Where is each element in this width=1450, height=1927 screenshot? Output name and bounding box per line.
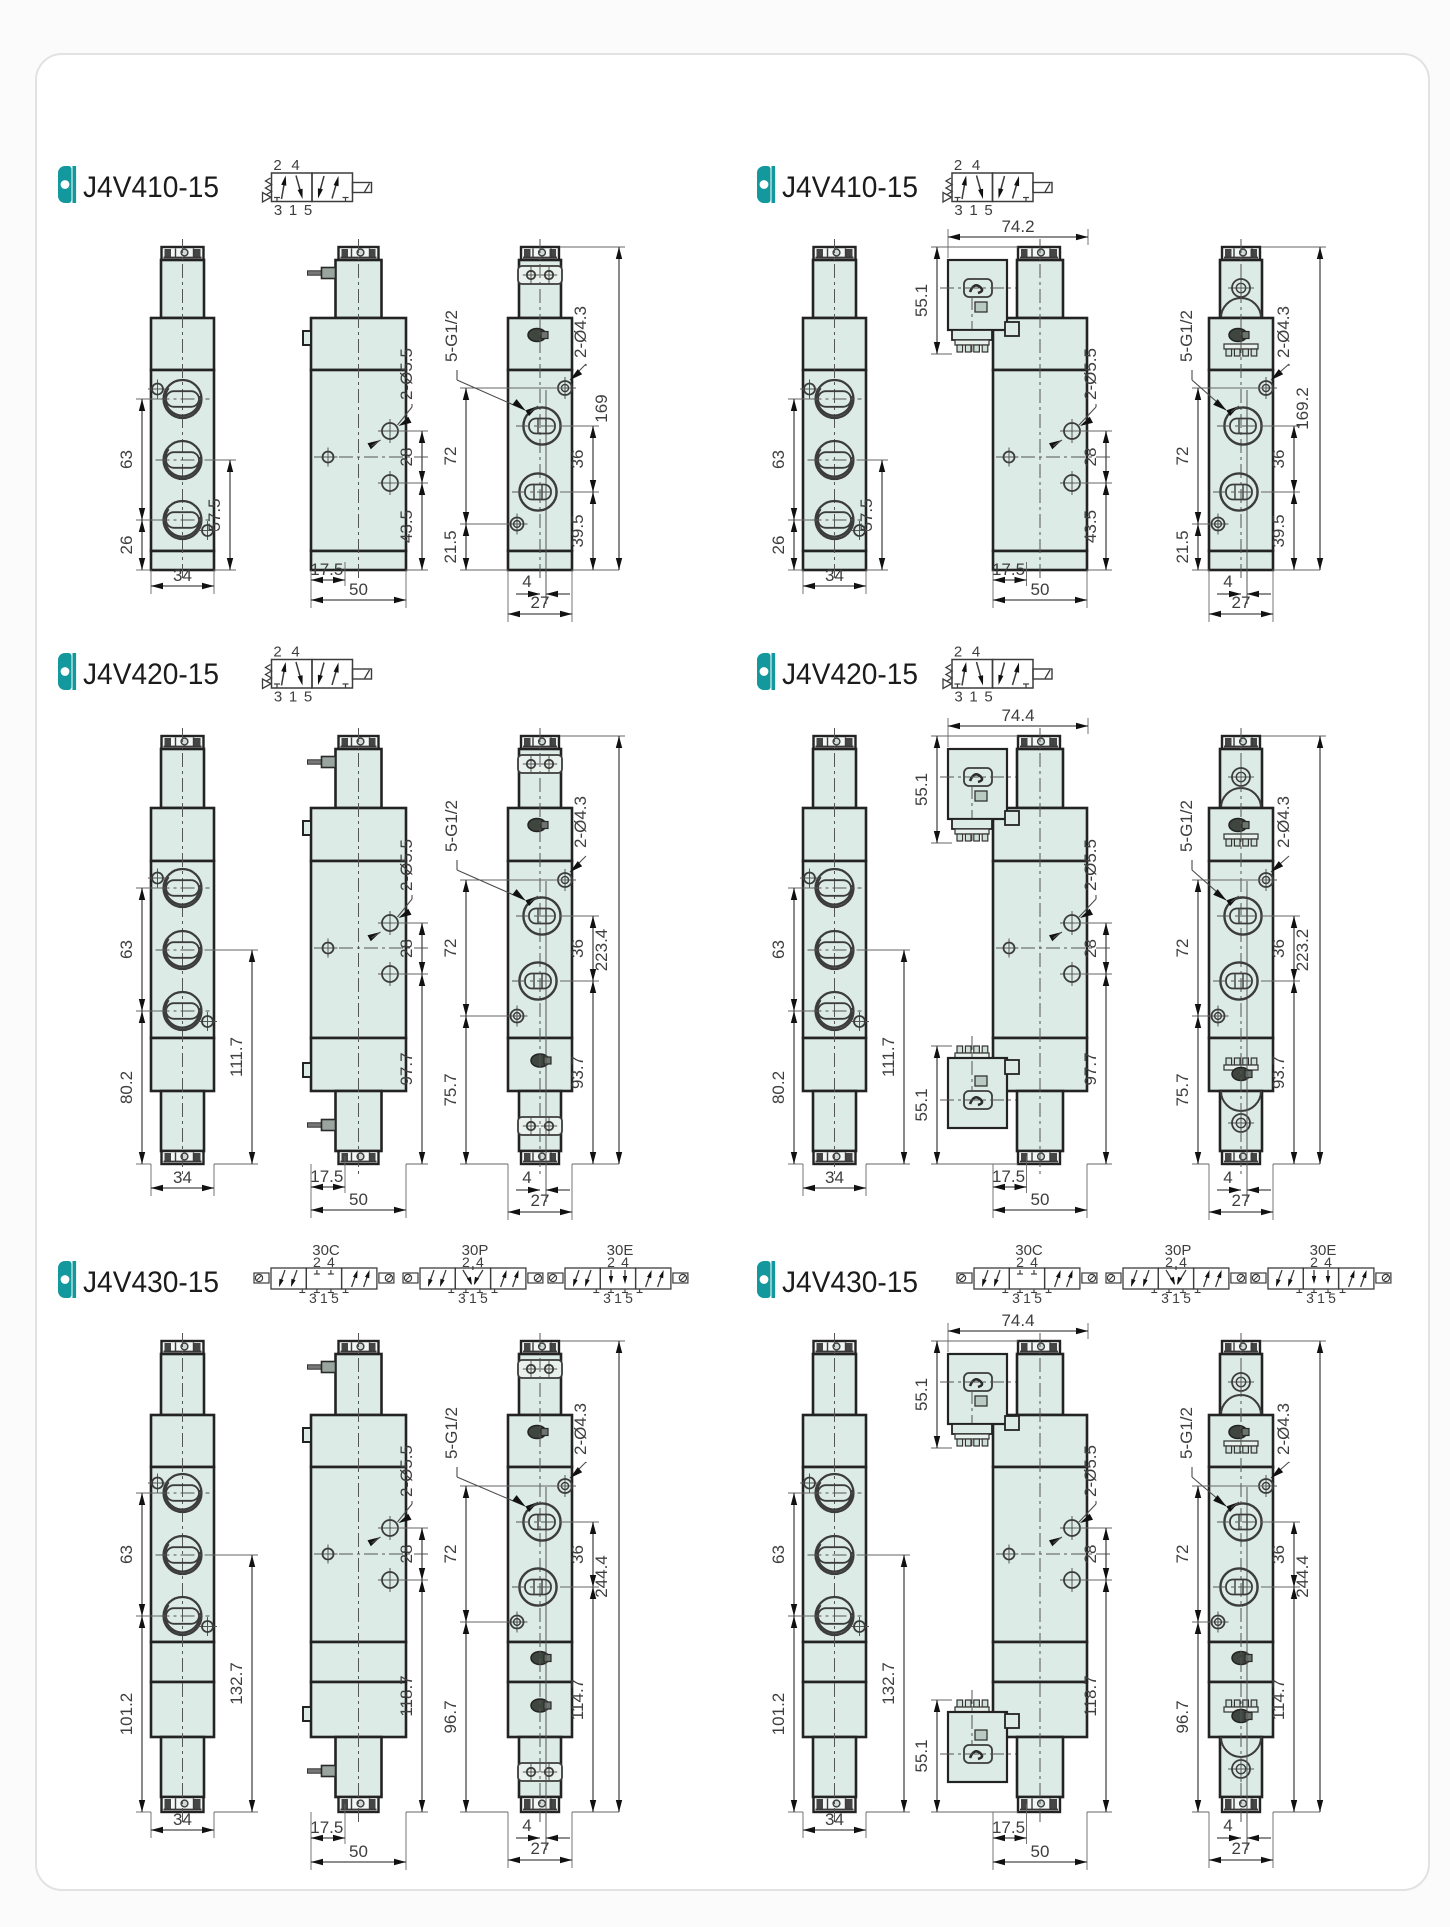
- svg-text:4: 4: [327, 1254, 335, 1270]
- svg-text:2: 2: [273, 644, 281, 661]
- svg-text:28: 28: [397, 939, 416, 958]
- svg-text:5: 5: [625, 1290, 633, 1306]
- svg-text:4: 4: [1030, 1254, 1038, 1270]
- svg-text:27: 27: [1232, 1839, 1251, 1858]
- svg-text:36: 36: [568, 939, 587, 958]
- svg-text:3: 3: [954, 202, 962, 219]
- svg-text:50: 50: [1031, 580, 1050, 599]
- svg-text:2: 2: [1165, 1254, 1173, 1270]
- svg-text:2: 2: [273, 157, 281, 174]
- svg-text:4: 4: [476, 1254, 484, 1270]
- svg-text:34: 34: [173, 1810, 192, 1829]
- svg-text:97.7: 97.7: [1081, 1052, 1100, 1085]
- svg-text:1: 1: [1317, 1290, 1325, 1306]
- svg-text:34: 34: [825, 1810, 844, 1829]
- svg-text:3: 3: [309, 1290, 317, 1306]
- svg-text:26: 26: [769, 536, 788, 555]
- svg-text:111.7: 111.7: [227, 1037, 246, 1077]
- svg-text:27: 27: [531, 1839, 550, 1858]
- svg-text:17.5: 17.5: [992, 1167, 1025, 1186]
- svg-text:4: 4: [522, 1168, 531, 1187]
- svg-text:J4V420-15: J4V420-15: [782, 658, 918, 691]
- svg-text:5: 5: [1328, 1290, 1336, 1306]
- svg-text:39.5: 39.5: [568, 514, 587, 547]
- svg-text:74.4: 74.4: [1001, 706, 1034, 725]
- svg-text:34: 34: [825, 566, 844, 585]
- svg-text:50: 50: [1031, 1842, 1050, 1861]
- svg-text:72: 72: [441, 939, 460, 958]
- svg-text:36: 36: [568, 450, 587, 469]
- svg-text:55.1: 55.1: [912, 1739, 931, 1772]
- svg-text:223.4: 223.4: [592, 929, 611, 972]
- svg-text:2-Ø4.3: 2-Ø4.3: [571, 306, 590, 358]
- svg-text:21.5: 21.5: [441, 530, 460, 563]
- svg-text:34: 34: [173, 566, 192, 585]
- svg-text:36: 36: [568, 1545, 587, 1564]
- svg-text:101.2: 101.2: [117, 1693, 136, 1736]
- svg-text:5: 5: [984, 202, 992, 219]
- svg-text:J4V430-15: J4V430-15: [782, 1266, 918, 1299]
- svg-text:72: 72: [1173, 447, 1192, 466]
- svg-text:74.4: 74.4: [1001, 1311, 1034, 1330]
- svg-text:4: 4: [621, 1254, 629, 1270]
- svg-text:5: 5: [480, 1290, 488, 1306]
- svg-text:96.7: 96.7: [1173, 1700, 1192, 1733]
- svg-text:118.7: 118.7: [397, 1675, 416, 1716]
- svg-text:27: 27: [531, 593, 550, 612]
- svg-text:28: 28: [397, 448, 416, 467]
- svg-text:17.5: 17.5: [310, 560, 343, 579]
- svg-text:72: 72: [441, 447, 460, 466]
- svg-text:4: 4: [972, 644, 980, 661]
- svg-text:223.2: 223.2: [1293, 929, 1312, 972]
- svg-text:63: 63: [117, 1545, 136, 1564]
- svg-text:2: 2: [1016, 1254, 1024, 1270]
- svg-text:1: 1: [969, 202, 977, 219]
- svg-text:55.1: 55.1: [912, 1378, 931, 1411]
- svg-text:J4V410-15: J4V410-15: [83, 171, 219, 204]
- svg-text:2-Ø5.5: 2-Ø5.5: [1081, 839, 1100, 891]
- svg-text:50: 50: [349, 1190, 368, 1209]
- svg-text:36: 36: [1269, 1545, 1288, 1564]
- svg-text:5: 5: [984, 689, 992, 706]
- svg-text:3: 3: [274, 202, 282, 219]
- svg-text:244.4: 244.4: [1293, 1555, 1312, 1598]
- svg-text:80.2: 80.2: [117, 1071, 136, 1104]
- svg-text:4: 4: [522, 1816, 531, 1835]
- svg-text:17.5: 17.5: [992, 1818, 1025, 1837]
- svg-text:80.2: 80.2: [769, 1071, 788, 1104]
- svg-text:2: 2: [313, 1254, 321, 1270]
- svg-text:3: 3: [603, 1290, 611, 1306]
- svg-text:55.1: 55.1: [912, 773, 931, 806]
- svg-text:2: 2: [1310, 1254, 1318, 1270]
- svg-text:4: 4: [1324, 1254, 1332, 1270]
- svg-text:55.1: 55.1: [912, 1088, 931, 1121]
- svg-text:5: 5: [331, 1290, 339, 1306]
- svg-text:1: 1: [289, 689, 297, 706]
- svg-text:5-G1/2: 5-G1/2: [1177, 1407, 1196, 1459]
- svg-text:5-G1/2: 5-G1/2: [1177, 800, 1196, 852]
- svg-text:2-Ø5.5: 2-Ø5.5: [397, 839, 416, 891]
- svg-text:4: 4: [291, 157, 299, 174]
- svg-text:55.1: 55.1: [912, 284, 931, 317]
- svg-text:169: 169: [592, 394, 611, 422]
- svg-text:96.7: 96.7: [441, 1700, 460, 1733]
- svg-text:114.7: 114.7: [568, 1679, 587, 1720]
- svg-text:4: 4: [1223, 1168, 1232, 1187]
- svg-text:2-Ø4.3: 2-Ø4.3: [571, 796, 590, 848]
- svg-text:3: 3: [1161, 1290, 1169, 1306]
- svg-text:63: 63: [769, 450, 788, 469]
- svg-text:1: 1: [1172, 1290, 1180, 1306]
- svg-text:101.2: 101.2: [769, 1693, 788, 1736]
- svg-text:4: 4: [1179, 1254, 1187, 1270]
- svg-text:72: 72: [1173, 939, 1192, 958]
- svg-text:50: 50: [349, 580, 368, 599]
- svg-text:114.7: 114.7: [1269, 1679, 1288, 1720]
- svg-text:5: 5: [1183, 1290, 1191, 1306]
- svg-text:4: 4: [291, 644, 299, 661]
- svg-text:36: 36: [1269, 450, 1288, 469]
- svg-text:21.5: 21.5: [1173, 530, 1192, 563]
- svg-text:50: 50: [1031, 1190, 1050, 1209]
- svg-text:43.5: 43.5: [1081, 510, 1100, 543]
- svg-text:27: 27: [531, 1191, 550, 1210]
- svg-text:27: 27: [1232, 593, 1251, 612]
- svg-text:3: 3: [1306, 1290, 1314, 1306]
- svg-text:244.4: 244.4: [592, 1555, 611, 1598]
- svg-text:34: 34: [173, 1168, 192, 1187]
- svg-text:63: 63: [117, 450, 136, 469]
- svg-text:39.5: 39.5: [1269, 514, 1288, 547]
- svg-text:5-G1/2: 5-G1/2: [442, 310, 461, 362]
- svg-text:1: 1: [469, 1290, 477, 1306]
- svg-text:28: 28: [1081, 448, 1100, 467]
- svg-text:43.5: 43.5: [397, 510, 416, 543]
- svg-text:J4V410-15: J4V410-15: [782, 171, 918, 204]
- svg-text:5-G1/2: 5-G1/2: [442, 1407, 461, 1459]
- svg-text:5-G1/2: 5-G1/2: [1177, 310, 1196, 362]
- svg-text:34: 34: [825, 1168, 844, 1187]
- svg-text:132.7: 132.7: [227, 1662, 246, 1705]
- svg-text:2-Ø4.3: 2-Ø4.3: [1274, 306, 1293, 358]
- svg-text:132.7: 132.7: [879, 1662, 898, 1705]
- svg-text:2-Ø4.3: 2-Ø4.3: [1274, 1403, 1293, 1455]
- svg-text:5: 5: [304, 689, 312, 706]
- svg-text:36: 36: [1269, 939, 1288, 958]
- svg-text:93.7: 93.7: [568, 1056, 587, 1089]
- svg-text:2: 2: [462, 1254, 470, 1270]
- svg-text:3: 3: [1012, 1290, 1020, 1306]
- svg-text:97.7: 97.7: [397, 1052, 416, 1085]
- svg-text:93.7: 93.7: [1269, 1056, 1288, 1089]
- svg-text:2-Ø4.3: 2-Ø4.3: [571, 1403, 590, 1455]
- svg-text:J4V430-15: J4V430-15: [83, 1266, 219, 1299]
- svg-text:17.5: 17.5: [310, 1818, 343, 1837]
- svg-text:72: 72: [441, 1545, 460, 1564]
- svg-text:4: 4: [522, 572, 531, 591]
- svg-text:118.7: 118.7: [1081, 1675, 1100, 1716]
- svg-text:75.7: 75.7: [441, 1073, 460, 1106]
- svg-text:72: 72: [1173, 1545, 1192, 1564]
- svg-text:63: 63: [769, 940, 788, 959]
- svg-text:J4V420-15: J4V420-15: [83, 658, 219, 691]
- svg-text:26: 26: [117, 536, 136, 555]
- svg-text:17.5: 17.5: [310, 1167, 343, 1186]
- svg-text:2-Ø4.3: 2-Ø4.3: [1274, 796, 1293, 848]
- svg-text:63: 63: [769, 1545, 788, 1564]
- svg-text:17.5: 17.5: [992, 560, 1025, 579]
- svg-text:1: 1: [289, 202, 297, 219]
- svg-text:57.5: 57.5: [205, 498, 224, 531]
- svg-text:63: 63: [117, 940, 136, 959]
- svg-text:2-Ø5.5: 2-Ø5.5: [397, 1445, 416, 1497]
- svg-text:111.7: 111.7: [879, 1037, 898, 1077]
- svg-text:2: 2: [607, 1254, 615, 1270]
- svg-text:57.5: 57.5: [857, 498, 876, 531]
- svg-text:4: 4: [1223, 572, 1232, 591]
- svg-text:27: 27: [1232, 1191, 1251, 1210]
- svg-text:169.2: 169.2: [1293, 387, 1312, 430]
- svg-text:2-Ø5.5: 2-Ø5.5: [1081, 1445, 1100, 1497]
- svg-text:28: 28: [1081, 939, 1100, 958]
- svg-text:5: 5: [304, 202, 312, 219]
- svg-text:1: 1: [969, 689, 977, 706]
- svg-text:2: 2: [954, 157, 962, 174]
- svg-text:5: 5: [1034, 1290, 1042, 1306]
- svg-text:5-G1/2: 5-G1/2: [442, 800, 461, 852]
- svg-text:28: 28: [1081, 1545, 1100, 1564]
- svg-text:3: 3: [954, 689, 962, 706]
- svg-text:50: 50: [349, 1842, 368, 1861]
- svg-text:3: 3: [274, 689, 282, 706]
- svg-text:2-Ø5.5: 2-Ø5.5: [397, 348, 416, 400]
- svg-text:3: 3: [458, 1290, 466, 1306]
- svg-text:2-Ø5.5: 2-Ø5.5: [1081, 348, 1100, 400]
- svg-text:28: 28: [397, 1545, 416, 1564]
- svg-text:1: 1: [1023, 1290, 1031, 1306]
- svg-text:2: 2: [954, 644, 962, 661]
- svg-text:1: 1: [320, 1290, 328, 1306]
- svg-text:75.7: 75.7: [1173, 1073, 1192, 1106]
- svg-text:1: 1: [614, 1290, 622, 1306]
- svg-text:4: 4: [972, 157, 980, 174]
- svg-text:4: 4: [1223, 1816, 1232, 1835]
- svg-text:74.2: 74.2: [1001, 217, 1034, 236]
